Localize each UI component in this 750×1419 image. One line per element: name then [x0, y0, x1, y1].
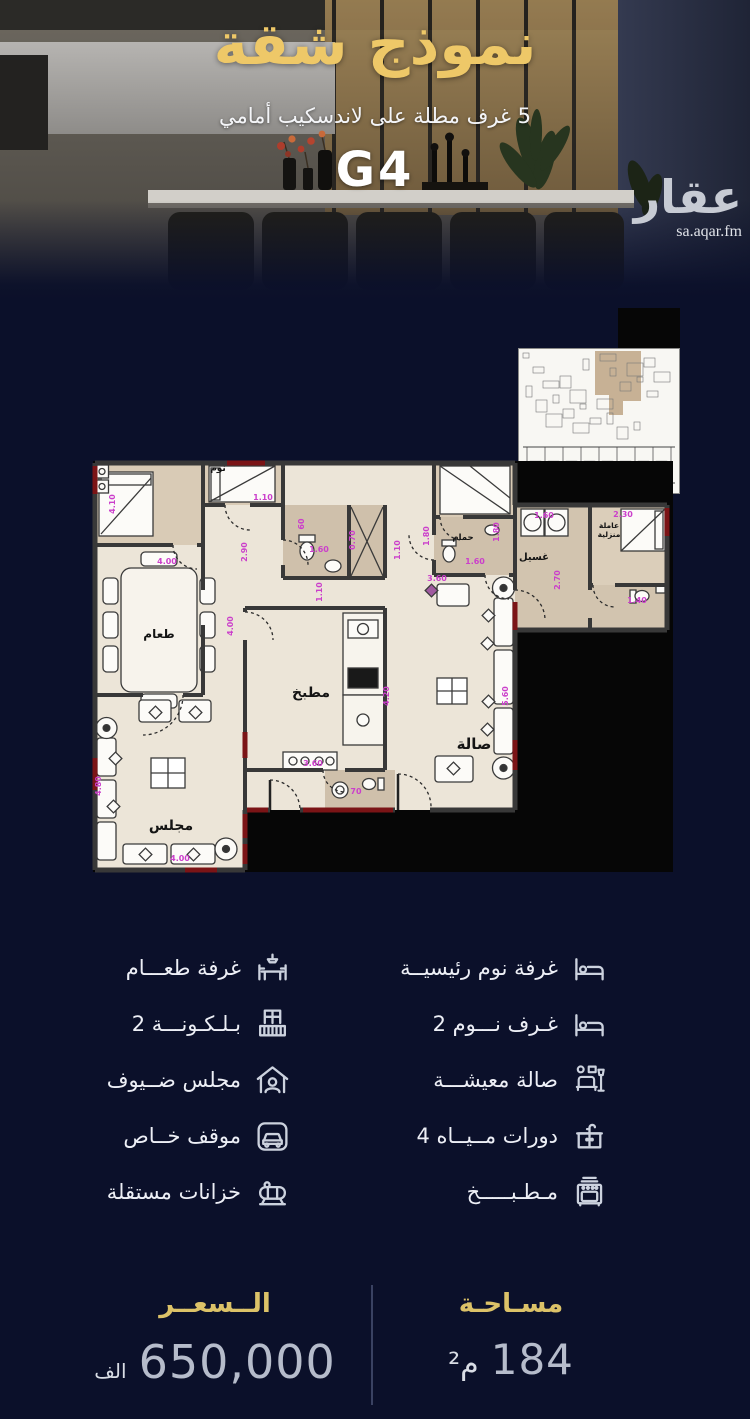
- room-label: نوم: [210, 464, 226, 474]
- feature-label: صالة معيشـــة: [433, 1068, 558, 1092]
- guest-house-icon: [254, 1062, 291, 1099]
- dining-table-icon: [254, 950, 291, 987]
- area-unit: م²: [448, 1347, 479, 1382]
- feature-label: غـرف نـــوم 2: [433, 1012, 558, 1036]
- feature-label: مـطـبـــــخ: [467, 1180, 558, 1204]
- room-label: مطبخ: [292, 685, 330, 701]
- dimension-label: 2.70: [553, 570, 562, 590]
- flyer-title: نموذج شقة: [0, 10, 750, 78]
- feature-item: غرفة نوم رئيسيــة: [372, 940, 608, 996]
- dimension-label: 4.00: [170, 854, 190, 863]
- feature-label: دورات مــيــاه 4: [416, 1124, 558, 1148]
- dimension-label: 1.10: [253, 493, 273, 502]
- dimension-label: 2.30: [613, 510, 633, 519]
- dimension-label: 4.20: [382, 686, 391, 706]
- price-unit: الف: [94, 1359, 126, 1383]
- dimension-label: 1.60: [309, 545, 329, 554]
- dimension-label: 1.60: [465, 557, 485, 566]
- room-label: طعام: [143, 627, 174, 642]
- dimension-label: 4.80: [94, 776, 103, 796]
- area-block: مسـاحـة 184 م²: [388, 1289, 634, 1384]
- dimension-label: 70: [350, 787, 362, 796]
- feature-label: خزانات مستقلة: [107, 1180, 241, 1204]
- feature-column-right: غرفة نوم رئيسيــة غـرف نـــوم 2 صالة معي…: [372, 940, 608, 1220]
- dimension-label: 5.60: [501, 686, 510, 706]
- feature-item: دورات مــيــاه 4: [372, 1108, 608, 1164]
- dimension-label: 4.10: [108, 494, 117, 514]
- bathroom-sink-icon: [571, 1118, 608, 1155]
- dimension-label: 1.10: [393, 540, 402, 560]
- dimension-label: 1.40: [627, 596, 647, 605]
- brand-logo: عقار sa.aqar.fm: [634, 174, 742, 241]
- dimension-label: 3.60: [303, 759, 323, 768]
- price-block: الــسعــر 650,000 الف: [70, 1289, 360, 1389]
- flyer-page: نموذج شقة 5 غرف مطلة على لاندسكيب أمامي …: [0, 0, 750, 1419]
- feature-item: مجلس ضــيوف: [95, 1052, 291, 1108]
- price-value: 650,000: [139, 1335, 336, 1389]
- feature-item: موقف خــاص: [95, 1108, 291, 1164]
- room-label: صالة: [457, 735, 492, 753]
- water-tank-icon: [254, 1174, 291, 1211]
- dimension-label: 1.80: [422, 526, 431, 546]
- flyer-subtitle: 5 غرف مطلة على لاندسكيب أمامي: [0, 104, 750, 128]
- dimension-label: 1.80: [492, 522, 501, 542]
- dimension-label: 3.60: [427, 574, 447, 583]
- feature-item: بـلـكـونـــة 2: [95, 996, 291, 1052]
- dimension-label: 2.90: [240, 542, 249, 562]
- dimension-label: 0.70: [348, 530, 357, 550]
- room-label: حمام: [452, 533, 473, 543]
- room-label: مجلس: [149, 818, 193, 834]
- feature-label: غرفة نوم رئيسيــة: [400, 956, 558, 980]
- brand-site-url: sa.aqar.fm: [634, 223, 742, 241]
- bed-icon: [571, 950, 608, 987]
- feature-label: مجلس ضــيوف: [107, 1068, 241, 1092]
- feature-item: مـطـبـــــخ: [372, 1164, 608, 1220]
- area-label: مسـاحـة: [388, 1289, 634, 1319]
- floor-plan: نومطعاممجلسمطبخصالةحمامغسيلعاملةمنزلية 4…: [85, 440, 685, 885]
- feature-column-left: غرفة طعـــام بـلـكـونـــة 2 مجلس ضــيوف …: [95, 940, 291, 1220]
- car-icon: [254, 1118, 291, 1155]
- dimension-label: 4.00: [157, 557, 177, 566]
- price-label: الــسعــر: [70, 1289, 360, 1319]
- room-label: عاملة: [599, 521, 619, 530]
- dimension-label: 4.00: [226, 616, 235, 636]
- feature-item: خزانات مستقلة: [95, 1164, 291, 1220]
- feature-item: غـرف نـــوم 2: [372, 996, 608, 1052]
- feature-label: غرفة طعـــام: [126, 956, 241, 980]
- area-value: 184: [491, 1335, 574, 1384]
- living-room-icon: [571, 1062, 608, 1099]
- stats-section: الــسعــر 650,000 الف مسـاحـة 184 م²: [0, 1283, 750, 1413]
- stats-divider: [371, 1285, 373, 1405]
- feature-item: صالة معيشـــة: [372, 1052, 608, 1108]
- hero-photo: نموذج شقة 5 غرف مطلة على لاندسكيب أمامي …: [0, 0, 750, 300]
- brand-name: عقار: [634, 174, 742, 220]
- room-label: منزلية: [598, 530, 621, 539]
- feature-item: غرفة طعـــام: [95, 940, 291, 996]
- decor-black-patch: [618, 308, 680, 350]
- dimension-label: 60: [297, 518, 306, 530]
- dimension-label: 1.10: [315, 582, 324, 602]
- balcony-icon: [254, 1006, 291, 1043]
- feature-label: بـلـكـونـــة 2: [132, 1012, 241, 1036]
- dimension-label: 1.60: [534, 511, 554, 520]
- bed-icon: [571, 1006, 608, 1043]
- kitchen-stove-icon: [571, 1174, 608, 1211]
- room-label: غسيل: [519, 552, 549, 563]
- feature-label: موقف خــاص: [123, 1124, 241, 1148]
